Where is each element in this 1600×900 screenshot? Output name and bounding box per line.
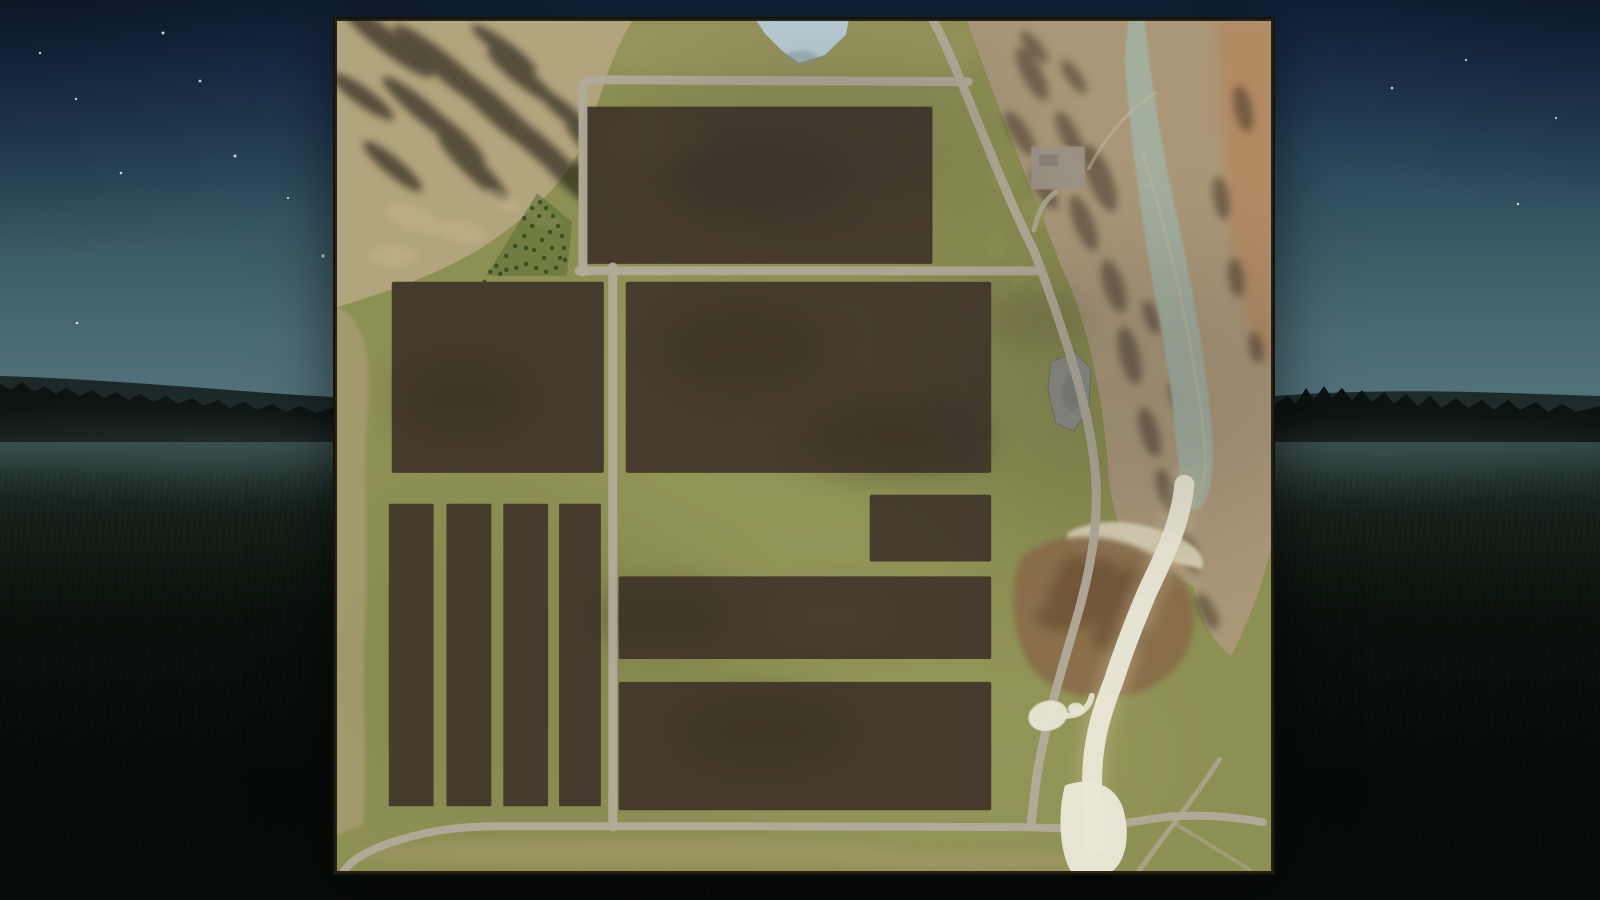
farmyard-building [1039,154,1059,166]
field-strip-4 [559,504,601,807]
aerial-farm-map[interactable] [333,17,1275,875]
farm-map-surface [335,19,1273,873]
field-strip-1 [389,504,434,807]
field-strip-3 [503,504,548,807]
field-strip-2 [447,504,492,807]
game-viewport[interactable] [0,0,1600,900]
farmyard-lot [1031,146,1085,189]
field-plot-small-right [870,495,991,562]
dirt-track-left-edge [335,306,369,836]
